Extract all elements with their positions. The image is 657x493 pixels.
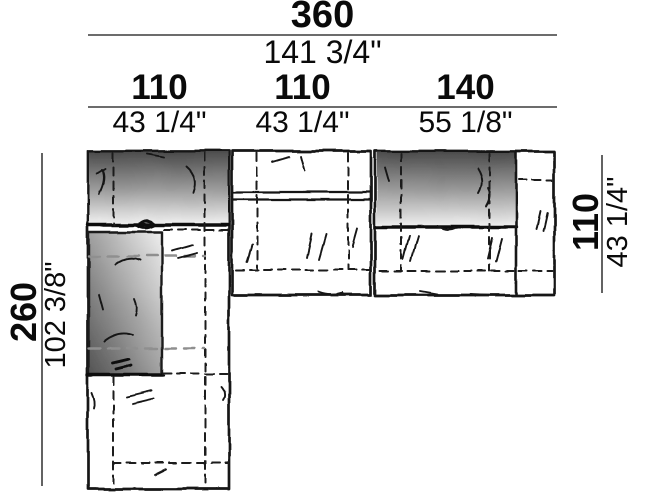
segment-2-metric-label: 110 (231, 71, 374, 105)
overall-width-metric-label: 360 (88, 0, 557, 34)
right-depth-metric-label: 110 (567, 142, 605, 302)
segment-1-metric-label: 110 (88, 71, 231, 105)
segment-2-imperial-label: 43 1/4" (231, 108, 374, 138)
middle-unit-outline (232, 151, 371, 295)
right-backrest (377, 152, 516, 227)
left-depth-imperial-label: 102 3/8" (41, 225, 71, 405)
left-depth-metric-label: 260 (5, 232, 43, 392)
corner-top-backrest (89, 152, 228, 225)
right-depth-imperial-label: 43 1/4" (603, 142, 633, 302)
segment-3-imperial-label: 55 1/8" (374, 108, 557, 138)
segment-3-metric-label: 140 (374, 71, 557, 105)
chaise-left-backrest (89, 232, 162, 375)
sofa-plan-diagram: 360 141 3/4" 110 110 140 43 1/4" 43 1/4"… (0, 0, 657, 493)
overall-width-imperial-label: 141 3/4" (88, 37, 557, 67)
segment-1-imperial-label: 43 1/4" (88, 108, 231, 138)
